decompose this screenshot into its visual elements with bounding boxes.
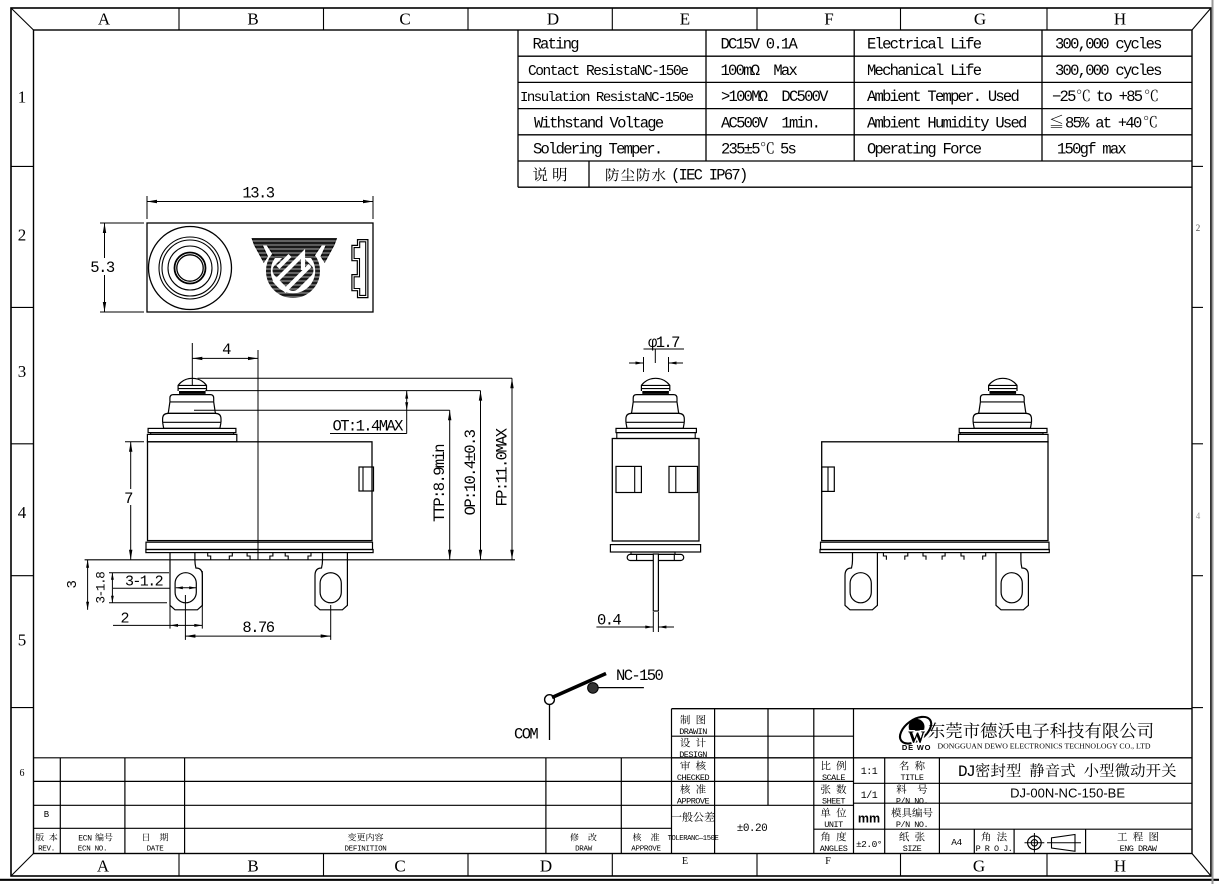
svg-text:±0.20: ±0.20 (737, 823, 768, 835)
svg-text:P/N NO.: P/N NO. (896, 797, 928, 807)
svg-text:B: B (247, 857, 258, 876)
svg-text:TOLERANC―150E: TOLERANC―150E (668, 835, 719, 843)
svg-text:5: 5 (18, 630, 27, 649)
svg-text:TTP:8.9min: TTP:8.9min (431, 445, 449, 522)
svg-text:DE WO: DE WO (902, 743, 931, 752)
svg-text:REV.: REV. (38, 846, 55, 854)
svg-text:7: 7 (124, 490, 133, 508)
svg-text:4: 4 (1196, 511, 1201, 521)
svg-text:Soldering Temper.: Soldering Temper. (533, 141, 661, 159)
svg-text:NC-150: NC-150 (616, 667, 664, 685)
svg-text:OP:10.4±0.3: OP:10.4±0.3 (462, 429, 480, 515)
svg-text:ECN: ECN (78, 835, 92, 844)
svg-text:DATE: DATE (147, 846, 165, 854)
svg-text:G: G (973, 857, 985, 876)
svg-text:ANGLES: ANGLES (820, 844, 848, 854)
svg-text:G: G (974, 10, 986, 29)
svg-text:D: D (547, 10, 559, 29)
svg-text:SIZE: SIZE (903, 844, 922, 854)
svg-text:Mechanical Life: Mechanical Life (867, 62, 982, 80)
svg-text:DJ: DJ (958, 763, 974, 781)
svg-text:2: 2 (18, 226, 27, 245)
svg-text:4: 4 (222, 341, 231, 359)
svg-text:DJ-00N-NC-150-BE: DJ-00N-NC-150-BE (1010, 786, 1125, 801)
svg-text:P R O J.: P R O J. (976, 844, 1013, 854)
svg-text:Rating: Rating (533, 36, 579, 54)
svg-text:>100MΩ DC500V: >100MΩ DC500V (721, 88, 829, 106)
svg-text:ENG DRAW: ENG DRAW (1120, 844, 1158, 854)
svg-text:P/N NO.: P/N NO. (896, 820, 928, 830)
svg-text:4: 4 (18, 503, 27, 522)
svg-text:H: H (1114, 10, 1126, 29)
svg-text:8.76: 8.76 (242, 619, 274, 637)
svg-text:D: D (540, 857, 552, 876)
svg-text:A: A (98, 10, 111, 29)
svg-text:Withstand Voltage: Withstand Voltage (534, 114, 664, 132)
svg-text:C: C (399, 10, 410, 29)
svg-text:ECN NO.: ECN NO. (78, 846, 107, 854)
svg-text:F: F (825, 856, 831, 867)
svg-text:235±5: 235±5 (721, 141, 760, 159)
svg-text:F: F (824, 10, 833, 29)
svg-text:DRAW: DRAW (575, 846, 593, 854)
svg-text:Operating Force: Operating Force (867, 141, 982, 159)
svg-text:UNIT: UNIT (824, 820, 843, 830)
svg-text:13.3: 13.3 (242, 185, 274, 203)
svg-text:CHECKED: CHECKED (677, 773, 710, 783)
svg-text:Contact ResistaNC-150e: Contact ResistaNC-150e (528, 64, 688, 80)
svg-text:150gf max: 150gf max (1057, 141, 1126, 159)
svg-text:Ambient Temper. Used: Ambient Temper. Used (867, 88, 1018, 106)
svg-text:APPROVE: APPROVE (631, 846, 661, 854)
svg-text:Ambient Humidity Used: Ambient Humidity Used (867, 114, 1026, 132)
svg-text:C: C (394, 857, 405, 876)
svg-text:H: H (1114, 857, 1126, 876)
svg-text:±2.0°: ±2.0° (856, 839, 882, 850)
svg-text:85% at +40: 85% at +40 (1065, 114, 1142, 132)
svg-text:3-1.8: 3-1.8 (95, 572, 109, 604)
svg-text:mm: mm (858, 812, 880, 826)
svg-text:SHEET: SHEET (822, 797, 845, 807)
svg-text:100mΩ Max: 100mΩ Max (721, 62, 798, 80)
svg-text:5.3: 5.3 (90, 259, 115, 277)
svg-text:A4: A4 (951, 837, 962, 848)
svg-text:AC500V 1min.: AC500V 1min. (721, 114, 819, 132)
svg-text:5s: 5s (780, 141, 797, 159)
svg-text:OT:1.4MAX: OT:1.4MAX (333, 418, 405, 436)
svg-text:Electrical Life: Electrical Life (867, 36, 982, 54)
svg-text:APPROVE: APPROVE (677, 797, 710, 807)
svg-text:E: E (680, 10, 690, 29)
svg-text:COM: COM (514, 726, 538, 744)
svg-text:B: B (247, 10, 258, 29)
svg-text:SCALE: SCALE (822, 773, 845, 783)
svg-text:2: 2 (1196, 223, 1201, 233)
svg-text:to +85: to +85 (1096, 88, 1143, 106)
svg-text:Insulation ResistaNC-150e: Insulation ResistaNC-150e (520, 90, 694, 106)
svg-text:DEFINITION: DEFINITION (344, 846, 386, 854)
svg-text:300,000 cycles: 300,000 cycles (1055, 36, 1162, 54)
svg-text:3: 3 (65, 580, 81, 588)
svg-text:TITLE: TITLE (900, 773, 923, 783)
svg-text:FP:11.0MAX: FP:11.0MAX (494, 427, 512, 506)
svg-text:6: 6 (20, 768, 25, 779)
svg-text:1/1: 1/1 (861, 790, 878, 802)
svg-text:B: B (44, 810, 50, 820)
svg-text:DONGGUAN DEWO ELECTRONICS TECH: DONGGUAN DEWO ELECTRONICS TECHNOLOGY CO.… (937, 742, 1150, 751)
svg-text:(IEC IP67): (IEC IP67) (671, 167, 747, 185)
svg-text:DC15V 0.1A: DC15V 0.1A (721, 36, 799, 54)
svg-text:DESIGN: DESIGN (679, 750, 707, 760)
svg-text:1:1: 1:1 (861, 767, 878, 778)
svg-text:−25: −25 (1052, 88, 1076, 106)
svg-text:3: 3 (18, 362, 27, 381)
svg-text:DRAWIN: DRAWIN (679, 727, 707, 737)
svg-text:E: E (682, 856, 688, 867)
svg-text:1: 1 (18, 87, 27, 106)
svg-text:300,000 cycles: 300,000 cycles (1055, 62, 1162, 80)
svg-text:A: A (97, 857, 110, 876)
